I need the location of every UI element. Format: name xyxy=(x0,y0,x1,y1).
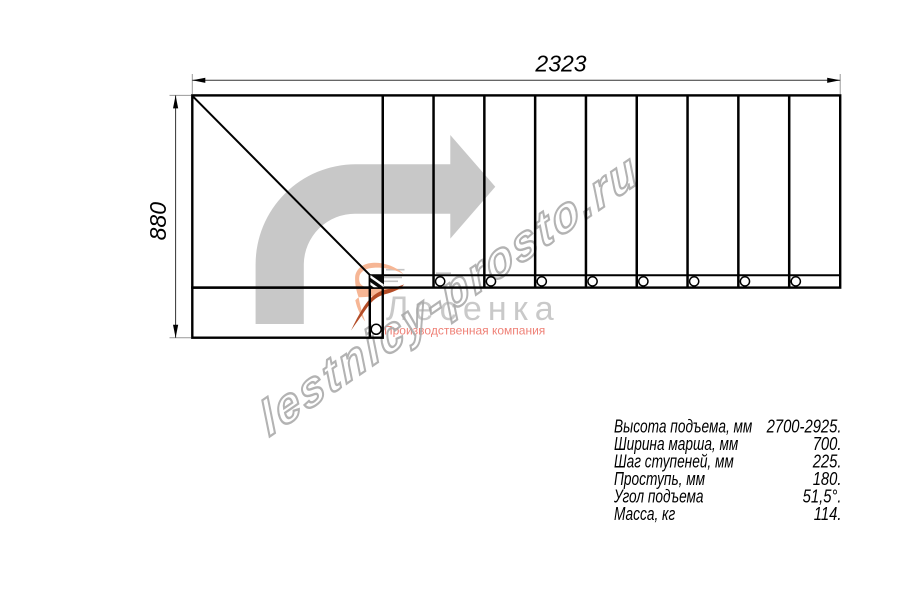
svg-text:114.: 114. xyxy=(814,503,842,524)
svg-text:880: 880 xyxy=(145,202,171,241)
svg-text:Масса, кг: Масса, кг xyxy=(614,504,675,524)
svg-text:2323: 2323 xyxy=(534,51,586,77)
